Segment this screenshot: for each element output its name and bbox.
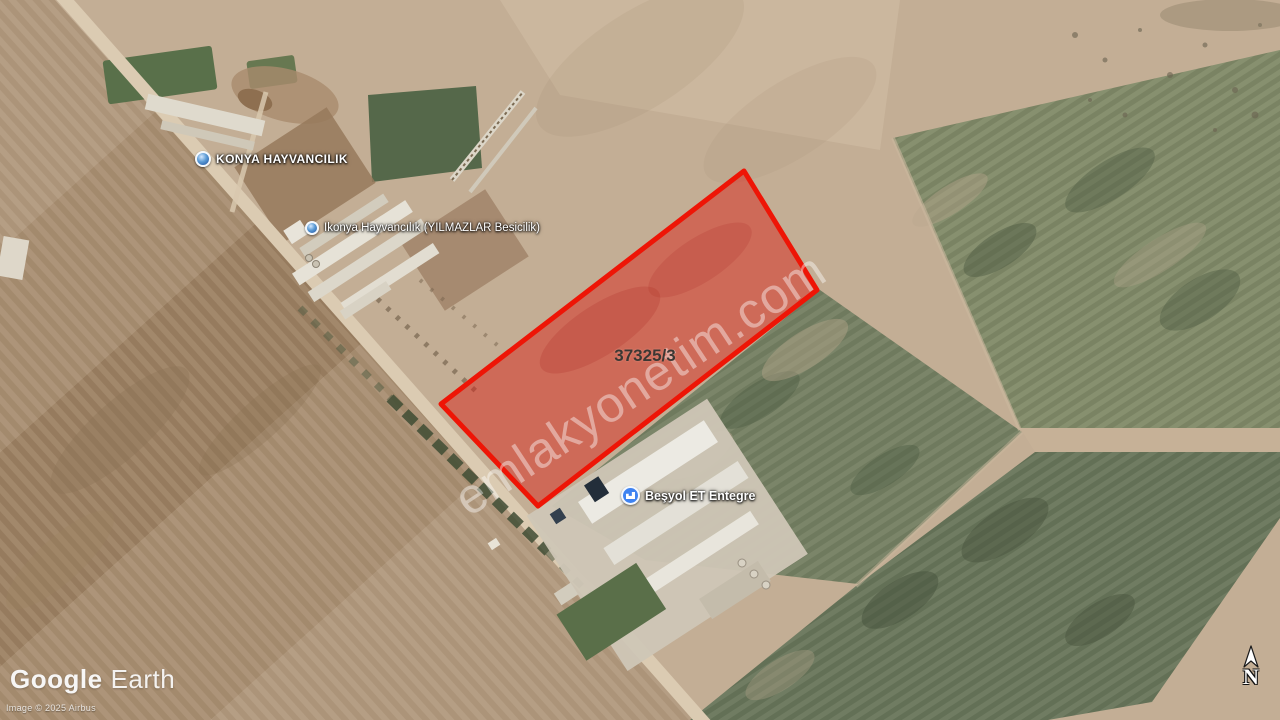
poi-ikonya-hayvancilik-yilmazlar[interactable]: Ikonya Hayvancılık (YILMAZLAR Besicilik) <box>305 221 540 235</box>
place-photo-icon <box>195 151 211 167</box>
poi-label: KONYA HAYVANCILIK <box>216 152 348 166</box>
logo-earth-text: Earth <box>111 664 176 695</box>
poi-konya-hayvancilik[interactable]: KONYA HAYVANCILIK <box>195 151 348 167</box>
poi-label: Beşyol ET Entegre <box>645 489 755 503</box>
north-letter: N <box>1243 666 1259 688</box>
place-photo-icon <box>305 221 319 235</box>
map-viewport[interactable]: emlakyonetim.com 37325/3 KONYA HAYVANCIL… <box>0 0 1280 720</box>
poi-besyol-et-entegre[interactable]: Beşyol ET Entegre <box>621 486 755 505</box>
logo-google-text: Google <box>10 664 103 695</box>
factory-poi-icon <box>621 486 640 505</box>
north-compass[interactable]: N <box>1236 645 1266 688</box>
google-earth-logo: Google Earth <box>10 664 175 695</box>
copyright-text: Image © 2025 Airbus <box>6 703 96 713</box>
parcel-number-label: 37325/3 <box>598 346 692 366</box>
poi-label: Ikonya Hayvancılık (YILMAZLAR Besicilik) <box>324 222 540 234</box>
